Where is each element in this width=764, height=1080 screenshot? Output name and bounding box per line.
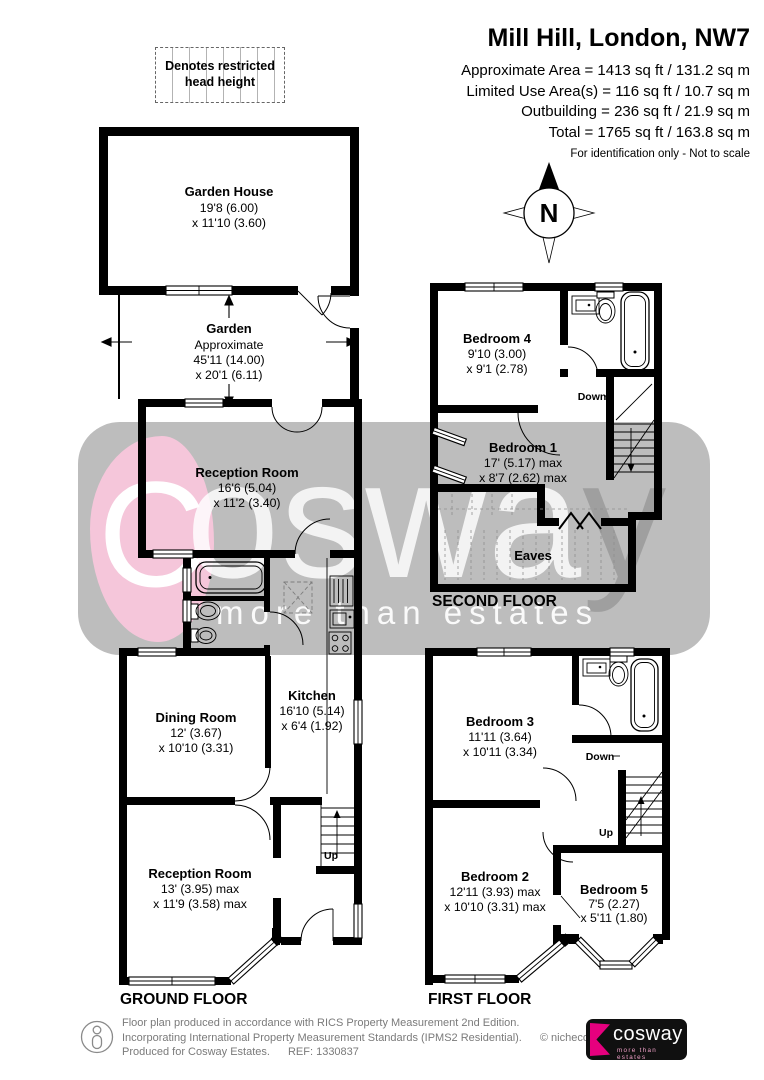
floorplan-canvas: Up Garden House 19'8 (6.00) x 11'10 (3.6… (0, 0, 764, 1080)
eaves-label: Eaves (514, 548, 552, 563)
bedroom4-window (465, 283, 523, 291)
bedroom4-dim1: 9'10 (3.00) (468, 347, 526, 361)
second-stairs (614, 384, 654, 478)
limited-use-area: Limited Use Area(s) = 116 sq ft / 10.7 s… (461, 82, 750, 103)
eaves-hatch (438, 494, 628, 580)
reception2-name: Reception Room (148, 866, 251, 881)
ground-floor-plan: Up Garden House 19'8 (6.00) x 11'10 (3.6… (99, 127, 362, 1008)
second-floor-label: SECOND FLOOR (432, 593, 557, 610)
basin-icon (191, 628, 216, 644)
first-bath-icon (631, 659, 658, 731)
first-floor-plan: Down Up Bedroom 3 11'11 (3.64) (425, 648, 670, 1008)
garden-note: Approximate (194, 338, 263, 352)
bathroom-door-arc (270, 612, 303, 645)
cosway-logo-mark-icon (590, 1023, 610, 1056)
cosway-logo-tagline: more than estates (617, 1047, 687, 1061)
first-toilet-icon (609, 656, 628, 686)
kitchen-dim1: 16'10 (5.14) (279, 704, 344, 718)
first-floor-label: FIRST FLOOR (428, 991, 531, 1008)
footer-icon-spacer (80, 1020, 112, 1052)
bedroom1-dim2: x 8'7 (2.62) max (479, 471, 568, 485)
bedroom1-name: Bedroom 1 (489, 440, 557, 455)
bedroom5-dim2: x 5'11 (1.80) (580, 911, 647, 925)
bedroom5-dim1: 7'5 (2.27) (588, 897, 640, 911)
bedroom2-bay-window-front (445, 975, 505, 983)
garden-house-dim1: 19'8 (6.00) (200, 201, 258, 215)
compass-icon: N (504, 162, 594, 263)
reception2-door-arc (235, 805, 270, 840)
garden-dim1: 45'11 (14.00) (193, 353, 264, 367)
garden-house-window (166, 286, 232, 295)
second-floor-walls (430, 283, 662, 592)
restricted-patch (284, 582, 312, 613)
cosway-logo-brand: cosway (613, 1023, 683, 1046)
reception2-dim2: x 11'9 (3.58) max (153, 897, 248, 911)
french-door-arc-left (272, 407, 297, 432)
second-bathroom-door-arc (568, 347, 598, 377)
footer-line-3: Produced for Cosway Estates.REF: 1330837 (122, 1045, 629, 1060)
first-bathroom-door-arc (579, 705, 611, 737)
bedroom5-bay-window-front (600, 961, 632, 969)
garden-name: Garden (206, 321, 252, 336)
reception2-bay-window-angled (228, 932, 284, 984)
dining-dim1: 12' (3.67) (170, 726, 222, 740)
bedroom3-door-arc (543, 768, 576, 801)
header: Mill Hill, London, NW7 Approximate Area … (461, 24, 750, 160)
kitchen-sink-icon (330, 610, 354, 628)
bathroom-window-1 (183, 568, 191, 592)
reception2-dim1: 13' (3.95) max (161, 882, 240, 896)
dining-dim2: x 10'10 (3.31) (159, 741, 234, 755)
toilet-icon (191, 602, 220, 620)
reference-number: REF: 1330837 (288, 1046, 359, 1058)
dining-name: Dining Room (156, 710, 237, 725)
reception1-dim2: x 11'2 (3.40) (213, 496, 280, 510)
bath-icon (196, 562, 266, 593)
entrance-side-window (354, 904, 362, 938)
bedroom3-name: Bedroom 3 (466, 714, 534, 729)
cosway-logo: cosway more than estates (586, 1019, 687, 1060)
approximate-area: Approximate Area = 1413 sq ft / 131.2 sq… (461, 61, 750, 82)
kitchen-door-arc (295, 519, 330, 554)
reception1-dim1: 16'6 (5.04) (218, 481, 276, 495)
bedroom4-name: Bedroom 4 (463, 331, 532, 346)
bedroom2-bay-window-angled (516, 933, 572, 982)
ground-floor-label: GROUND FLOOR (120, 991, 247, 1008)
first-stairs-up-label: Up (599, 827, 613, 839)
ground-stairs-up-label: Up (324, 850, 338, 862)
restricted-height-legend: Denotes restricted head height (155, 47, 285, 103)
bedroom4-dim2: x 9'1 (2.78) (466, 362, 527, 376)
kitchen-appliance-icon (330, 576, 353, 606)
second-sink-icon (572, 296, 599, 314)
dining-door-arc (235, 766, 270, 801)
produced-for: Produced for Cosway Estates. (122, 1046, 270, 1058)
garden-house-dim2: x 11'10 (3.60) (192, 216, 266, 230)
footer-line-1: Floor plan produced in accordance with R… (122, 1016, 629, 1031)
footer: Floor plan produced in accordance with R… (80, 1014, 629, 1060)
bedroom5-name: Bedroom 5 (580, 882, 648, 897)
french-door-arc-right (297, 407, 322, 432)
bedroom3-window (477, 648, 531, 656)
floorplan-page: C osway more than estates (0, 0, 764, 1080)
first-floor-walls (425, 648, 670, 985)
bedroom3-dim1: 11'11 (3.64) (468, 730, 531, 744)
first-sink-icon (583, 659, 610, 676)
first-stairs (626, 772, 662, 838)
kitchen-dim2: x 6'4 (1.92) (281, 719, 342, 733)
dining-window (138, 648, 176, 656)
second-bath-icon (621, 292, 649, 370)
first-landing-window (610, 648, 634, 656)
total-area: Total = 1765 sq ft / 163.8 sq m (461, 123, 750, 144)
entrance-door-arc (301, 909, 333, 941)
bedroom2-dim1: 12'11 (3.93) max (450, 885, 542, 899)
first-stairs-down-label: Down (586, 751, 615, 763)
bedroom5-door-leaf (561, 896, 580, 918)
scale-disclaimer: For identification only - Not to scale (461, 148, 750, 160)
compass-north-label: N (540, 198, 559, 228)
second-stairs-down-label: Down (578, 391, 607, 403)
second-landing-window (595, 283, 623, 291)
kitchen-name: Kitchen (288, 688, 336, 703)
garden-dim2: x 20'1 (6.11) (195, 368, 262, 382)
second-floor-plan: Down Bedroom 4 9'10 (3.00) x 9'1 (2.78) … (430, 283, 662, 610)
hob-icon (329, 632, 351, 654)
outbuilding-area: Outbuilding = 236 sq ft / 21.9 sq m (461, 102, 750, 123)
reception2-bay-window-front (129, 977, 215, 985)
garden-gate-arc (318, 296, 350, 328)
bedroom5-bay-window-right (629, 937, 659, 967)
reception1-name: Reception Room (195, 465, 298, 480)
bedroom1-dim1: 17' (5.17) max (484, 456, 563, 470)
bathroom-window-2 (183, 600, 191, 622)
kitchen-window (354, 700, 362, 744)
legend-text: Denotes restricted head height (156, 59, 284, 90)
garden-house-name: Garden House (185, 184, 274, 199)
footer-line-2: Incorporating International Property Mea… (122, 1031, 629, 1046)
footer-text: Floor plan produced in accordance with R… (122, 1016, 629, 1060)
reception1-side-window (153, 550, 193, 558)
bedroom3-dim2: x 10'11 (3.34) (463, 745, 537, 759)
reception1-front-window (185, 399, 223, 407)
bedroom2-dim2: x 10'10 (3.31) max (444, 900, 546, 914)
bedroom2-name: Bedroom 2 (461, 869, 529, 884)
footer-line-2-text: Incorporating International Property Mea… (122, 1032, 522, 1044)
page-title: Mill Hill, London, NW7 (461, 24, 750, 53)
